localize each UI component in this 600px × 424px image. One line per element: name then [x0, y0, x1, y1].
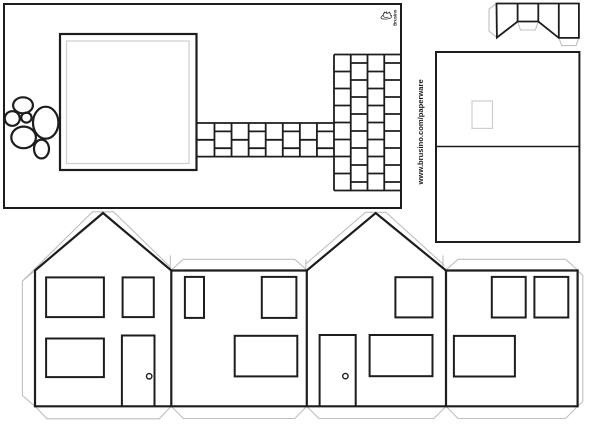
svg-text:www.brusino.com/paperware: www.brusino.com/paperware: [416, 79, 425, 185]
svg-text:Brusino: Brusino: [393, 9, 398, 26]
